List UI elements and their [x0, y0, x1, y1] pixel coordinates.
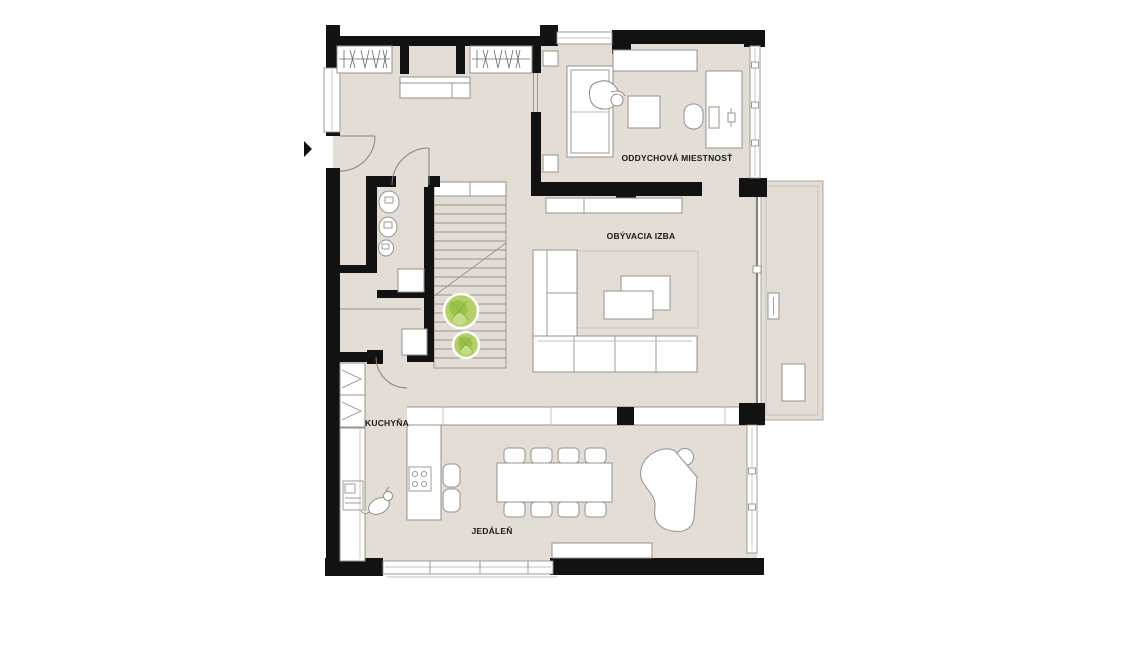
wall-niche-right: [456, 44, 465, 74]
wall-bath-top-a: [366, 176, 396, 187]
wall-left-mid: [326, 132, 340, 136]
washing-machine: [398, 269, 424, 292]
window-dining-right: [747, 425, 757, 553]
bidet: [379, 217, 397, 237]
wall-glazing-corner-top: [739, 178, 767, 197]
wall-storage-stub: [367, 350, 383, 364]
monitor: [709, 107, 719, 128]
ottoman: [628, 96, 660, 128]
dining-chair: [558, 502, 579, 517]
dining-chair: [531, 448, 552, 463]
dining-table: [497, 463, 612, 502]
plant: [444, 294, 478, 328]
window-rest-right: [750, 46, 760, 178]
wall-bottom: [550, 558, 764, 575]
dining-chair: [585, 448, 606, 463]
tv-sideboard: [546, 198, 682, 213]
nightstand: [543, 155, 558, 172]
label-kitchen: KUCHYŇA: [365, 417, 409, 428]
wall-top: [326, 36, 546, 46]
planter: [768, 293, 779, 319]
kitchen-counter: [340, 428, 365, 561]
tall-cabinet: [340, 363, 365, 427]
nightstand: [543, 51, 558, 66]
wall-column-1: [617, 407, 634, 425]
bar-stool: [443, 464, 460, 487]
sideboard: [552, 543, 652, 558]
dining-chair: [504, 448, 525, 463]
sliding-door-handle: [753, 266, 761, 273]
wall-bath-left: [366, 187, 377, 273]
coffee-table: [604, 291, 653, 319]
dining-chair: [504, 502, 525, 517]
wall-column-2: [739, 403, 765, 425]
dining-chair: [531, 502, 552, 517]
wall-rest-top: [612, 30, 764, 44]
window-bottom: [383, 561, 557, 577]
label-rest-room: ODDYCHOVÁ MIESTNOSŤ: [621, 152, 733, 163]
bed: [567, 66, 613, 157]
floor-plan: ODDYCHOVÁ MIESTNOSŤ OBÝVACIA IZBA KUCHYŇ…: [0, 0, 1125, 645]
kitchen-island: [407, 425, 441, 520]
wall-corner-mid: [540, 25, 558, 46]
wardrobe-left: [337, 46, 392, 73]
dining-chair: [558, 448, 579, 463]
dining-chair: [585, 502, 606, 517]
storage-box: [402, 329, 427, 355]
toilet: [379, 191, 399, 213]
floor-plan-canvas: ODDYCHOVÁ MIESTNOSŤ OBÝVACIA IZBA KUCHYŇ…: [0, 0, 1125, 645]
washbasin: [379, 240, 394, 256]
terrace-bench: [782, 364, 805, 401]
wall-closet-bottom: [340, 265, 377, 273]
wall-partition-lower: [531, 112, 541, 186]
wall-niche-left: [400, 44, 409, 74]
bar-stool: [443, 489, 460, 512]
shelf: [613, 50, 697, 71]
wall-left-bottom: [326, 168, 340, 576]
wardrobe-right: [470, 46, 532, 73]
label-living-room: OBÝVACIA IZBA: [607, 230, 676, 241]
partition-beam: [407, 407, 764, 425]
wall-bath-top-b: [428, 176, 440, 187]
entry-arrow: [304, 141, 312, 157]
wall-corner-tr: [744, 30, 765, 47]
desk-chair: [684, 104, 703, 129]
dresser: [400, 77, 470, 98]
label-dining-room: JEDÁLEŇ: [471, 525, 512, 536]
plant: [453, 332, 479, 358]
desk: [706, 71, 742, 148]
